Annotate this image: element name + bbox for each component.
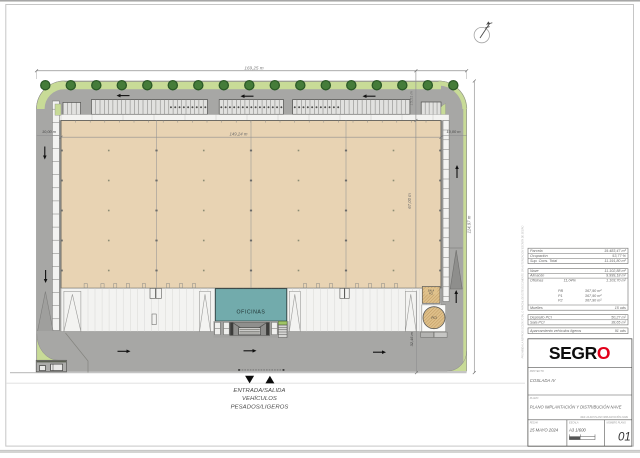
svg-text:15,51 m: 15,51 m <box>408 91 413 106</box>
svg-text:Sala PCI: Sala PCI <box>530 321 545 325</box>
svg-text:50,27 m²: 50,27 m² <box>611 315 626 319</box>
svg-text:NÚMERO PLANO: NÚMERO PLANO <box>607 421 627 424</box>
svg-text:15 MAYO 2024: 15 MAYO 2024 <box>530 427 559 432</box>
svg-text:Ocupación: Ocupación <box>530 254 548 258</box>
svg-text:38,65 m²: 38,65 m² <box>611 321 626 325</box>
svg-text:OFICINAS: OFICINAS <box>237 310 266 316</box>
svg-text:67,00 m: 67,00 m <box>407 193 412 209</box>
svg-text:VEHÍCULOS: VEHÍCULOS <box>242 395 277 402</box>
svg-text:10,00 m: 10,00 m <box>446 129 461 134</box>
svg-text:367,90 m²: 367,90 m² <box>585 299 602 303</box>
svg-text:REF. 24-018 PLANO IMPLANTACIÓN: REF. 24-018 PLANO IMPLANTACIÓN NAVE <box>581 416 629 419</box>
svg-text:ESCALA: ESCALA <box>569 421 579 424</box>
svg-text:Depósito PCI: Depósito PCI <box>530 315 552 319</box>
svg-text:P1: P1 <box>558 294 563 298</box>
svg-text:PCI: PCI <box>429 292 433 295</box>
svg-text:PB: PB <box>558 289 563 293</box>
svg-text:Muelles: Muelles <box>530 306 543 310</box>
svg-text:149,24 m: 149,24 m <box>230 131 248 136</box>
svg-text:11.191,80 m²: 11.191,80 m² <box>604 259 626 263</box>
svg-text:169,25 m: 169,25 m <box>244 65 263 70</box>
svg-text:Aparcamiento vehículos ligeros: Aparcamiento vehículos ligeros <box>529 329 581 333</box>
svg-text:P2: P2 <box>558 299 563 303</box>
svg-text:COSLADA IV: COSLADA IV <box>530 378 557 383</box>
svg-text:SEGRO: SEGRO <box>549 343 610 363</box>
svg-text:PROYECTO: PROYECTO <box>530 370 544 373</box>
svg-text:PLANO: PLANO <box>530 397 539 400</box>
svg-text:15 uds: 15 uds <box>615 306 626 310</box>
svg-text:114,97 m: 114,97 m <box>467 215 472 233</box>
svg-text:11,04%: 11,04% <box>564 278 577 282</box>
svg-text:PROHIBIDA LA REPRODUCCIÓN TOTA: PROHIBIDA LA REPRODUCCIÓN TOTAL O PARCIA… <box>522 226 525 359</box>
svg-text:PLANO IMPLANTACIÓN Y DISTRIBUC: PLANO IMPLANTACIÓN Y DISTRIBUCIÓN NAVE <box>530 404 622 409</box>
svg-text:PESADOS/LIGEROS: PESADOS/LIGEROS <box>231 405 289 411</box>
svg-text:11.102,88 m²: 11.102,88 m² <box>604 269 626 273</box>
svg-text:Oficinas: Oficinas <box>530 278 543 282</box>
svg-text:10,00 m: 10,00 m <box>42 129 57 134</box>
svg-text:32,46 m: 32,46 m <box>409 332 414 347</box>
svg-text:A3 1/600: A3 1/600 <box>568 427 586 432</box>
svg-text:1.103,70 m²: 1.103,70 m² <box>606 278 626 282</box>
svg-text:Nave: Nave <box>530 269 539 273</box>
svg-text:ENTRADA/SALIDA: ENTRADA/SALIDA <box>233 388 285 394</box>
svg-text:FECHA: FECHA <box>530 421 539 424</box>
svg-text:367,90 m²: 367,90 m² <box>585 289 602 293</box>
svg-text:9.999,18 m²: 9.999,18 m² <box>606 274 626 278</box>
svg-text:01: 01 <box>618 432 631 444</box>
svg-text:Parcela: Parcela <box>530 249 543 253</box>
svg-text:367,90 m²: 367,90 m² <box>585 294 602 298</box>
svg-text:53,77 %: 53,77 % <box>612 254 626 258</box>
svg-text:91 uds: 91 uds <box>615 329 626 333</box>
svg-text:19.483,47 m²: 19.483,47 m² <box>604 249 627 253</box>
svg-text:Sup. Cons. Total: Sup. Cons. Total <box>530 259 557 263</box>
svg-text:Almacén: Almacén <box>529 274 544 278</box>
svg-text:PCI: PCI <box>431 316 436 320</box>
